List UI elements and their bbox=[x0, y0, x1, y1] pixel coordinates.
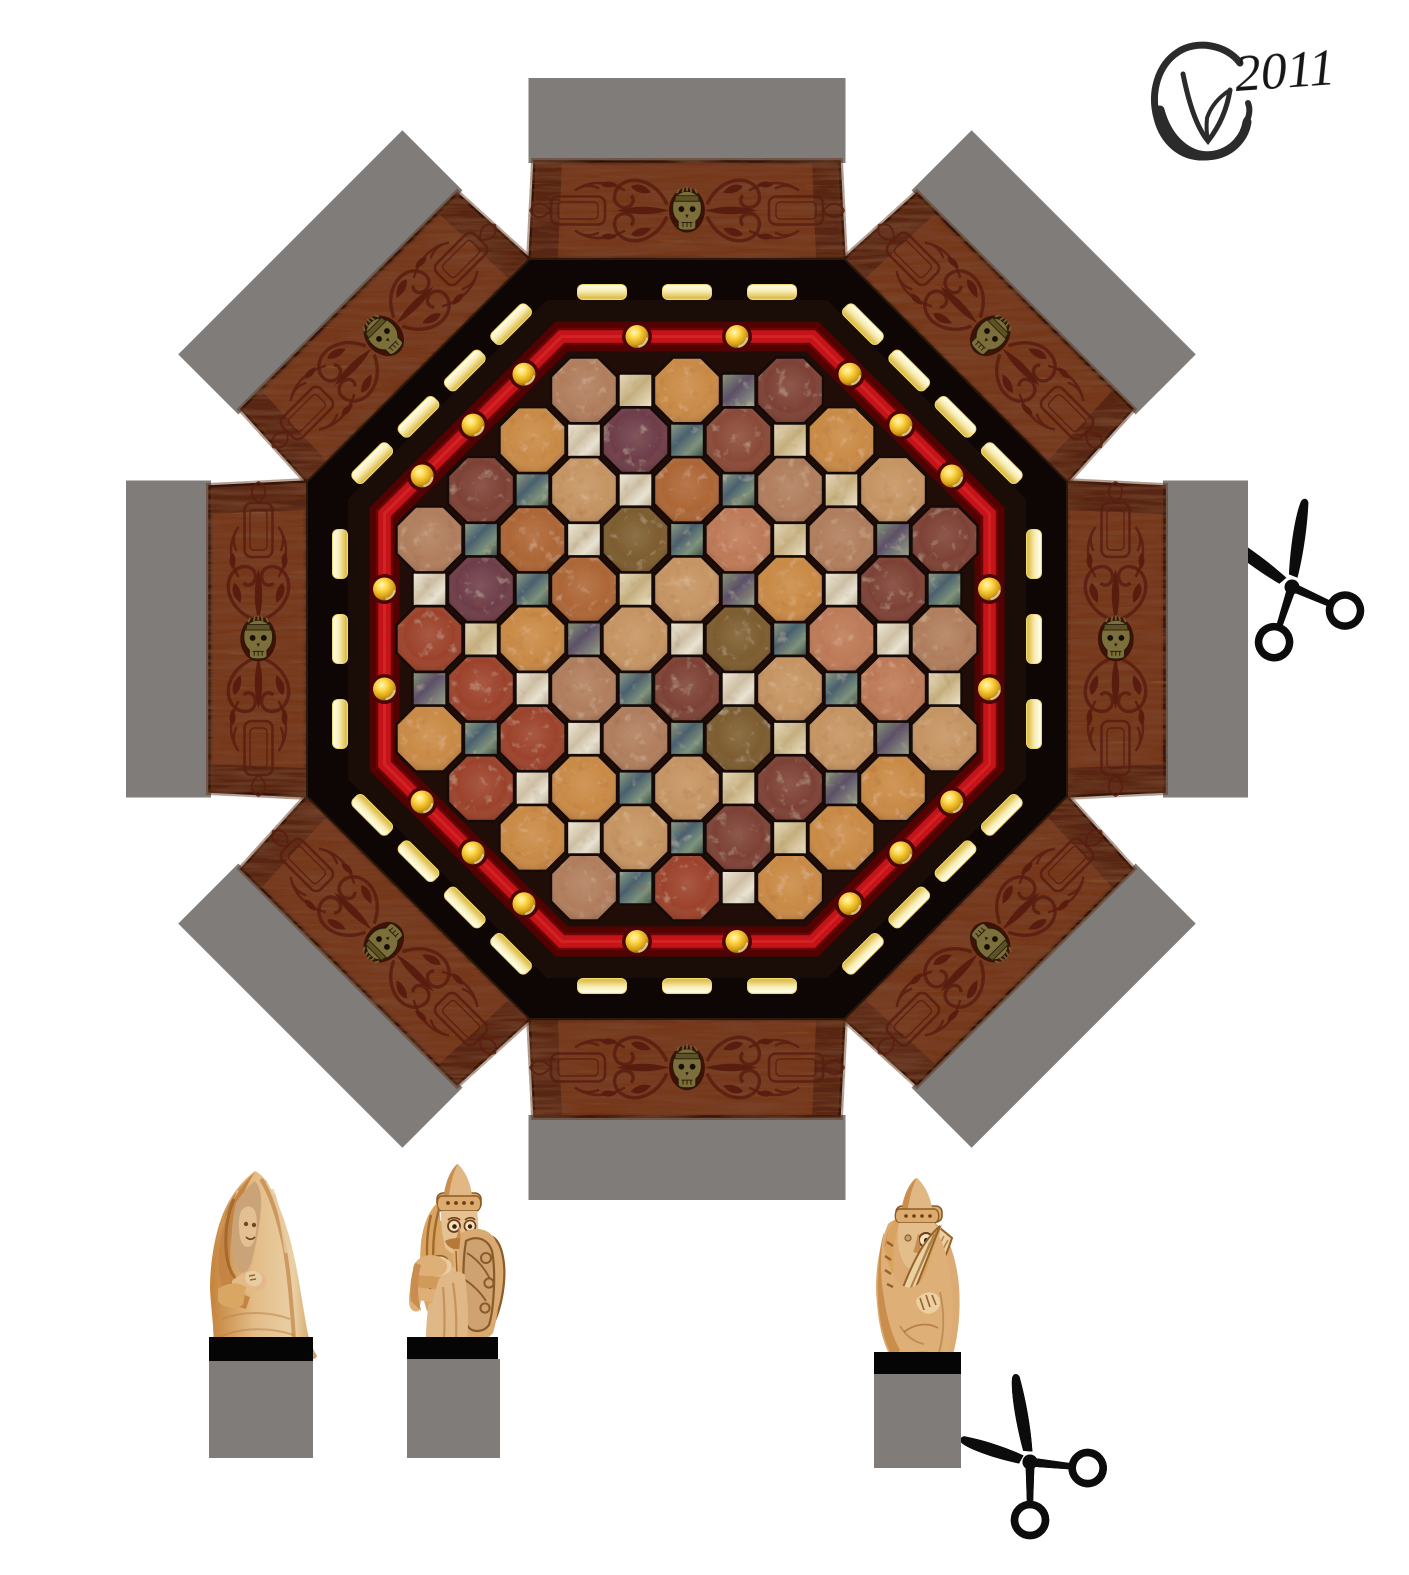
svg-text:2011: 2011 bbox=[1233, 39, 1337, 103]
